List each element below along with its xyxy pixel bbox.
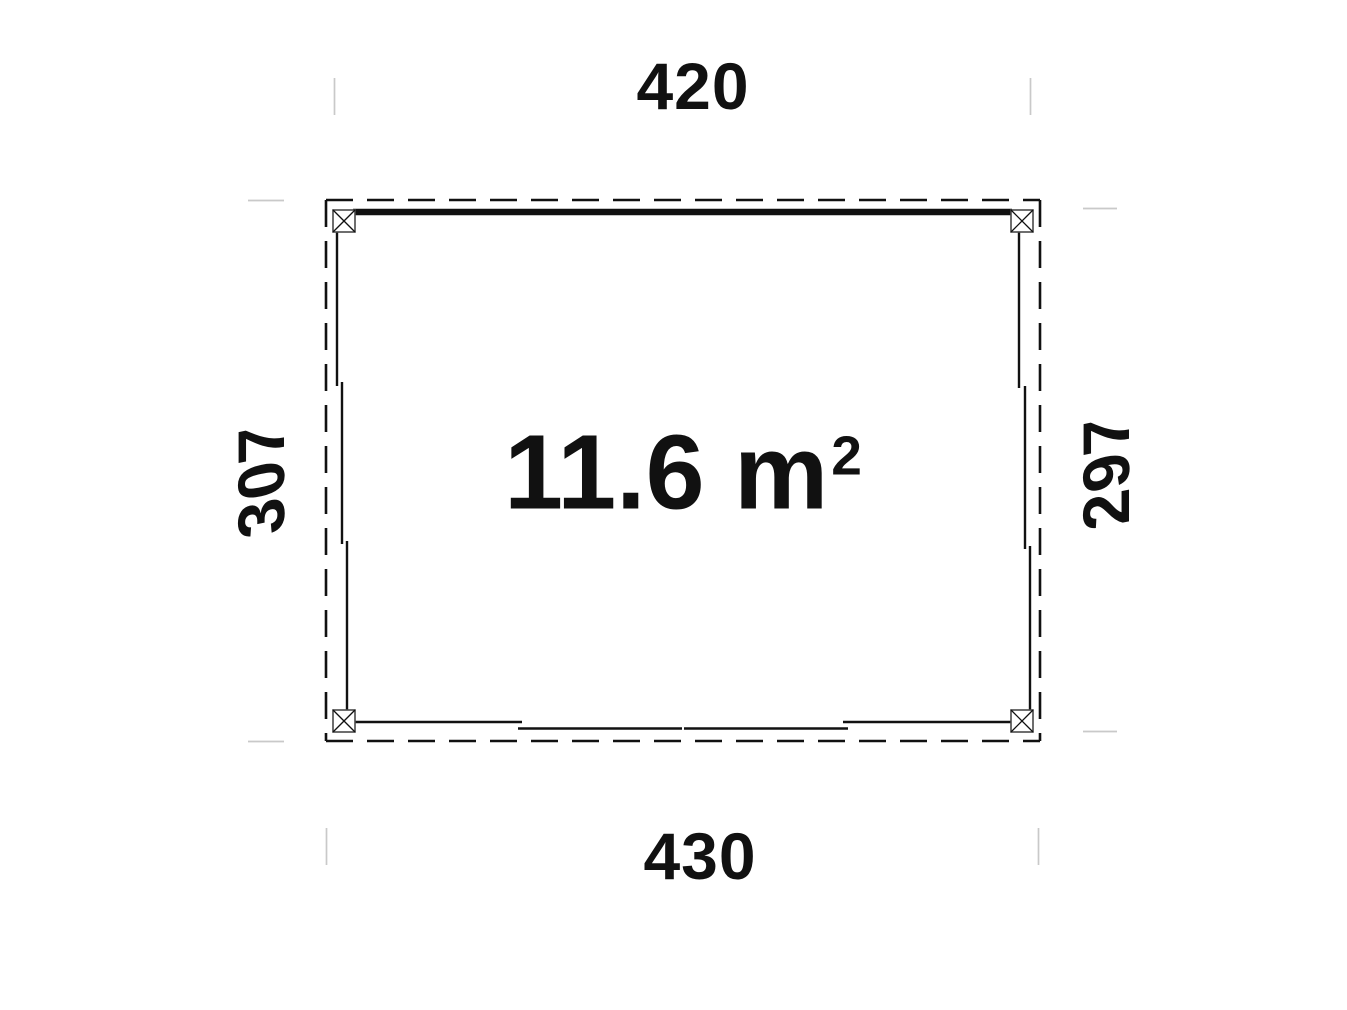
dimension-label-right: 297 [1068, 407, 1144, 536]
area-value: 11.6 m [504, 414, 828, 532]
dimension-label-left: 307 [223, 415, 299, 544]
floor-plan-page: 420 430 307 297 11.6 m2 [0, 0, 1347, 1010]
corner-post-bottom-left [333, 710, 355, 732]
corner-post-top-left [333, 210, 355, 232]
area-label: 11.6 m2 [504, 413, 862, 534]
side-wall-left [337, 231, 347, 710]
dimension-label-bottom: 430 [643, 818, 756, 894]
area-exponent: 2 [831, 424, 862, 486]
dimension-label-top: 420 [636, 48, 749, 124]
front-wall-bottom [355, 722, 1011, 729]
side-wall-right [1019, 232, 1030, 710]
corner-post-bottom-right [1011, 710, 1033, 732]
corner-post-top-right [1011, 210, 1033, 232]
